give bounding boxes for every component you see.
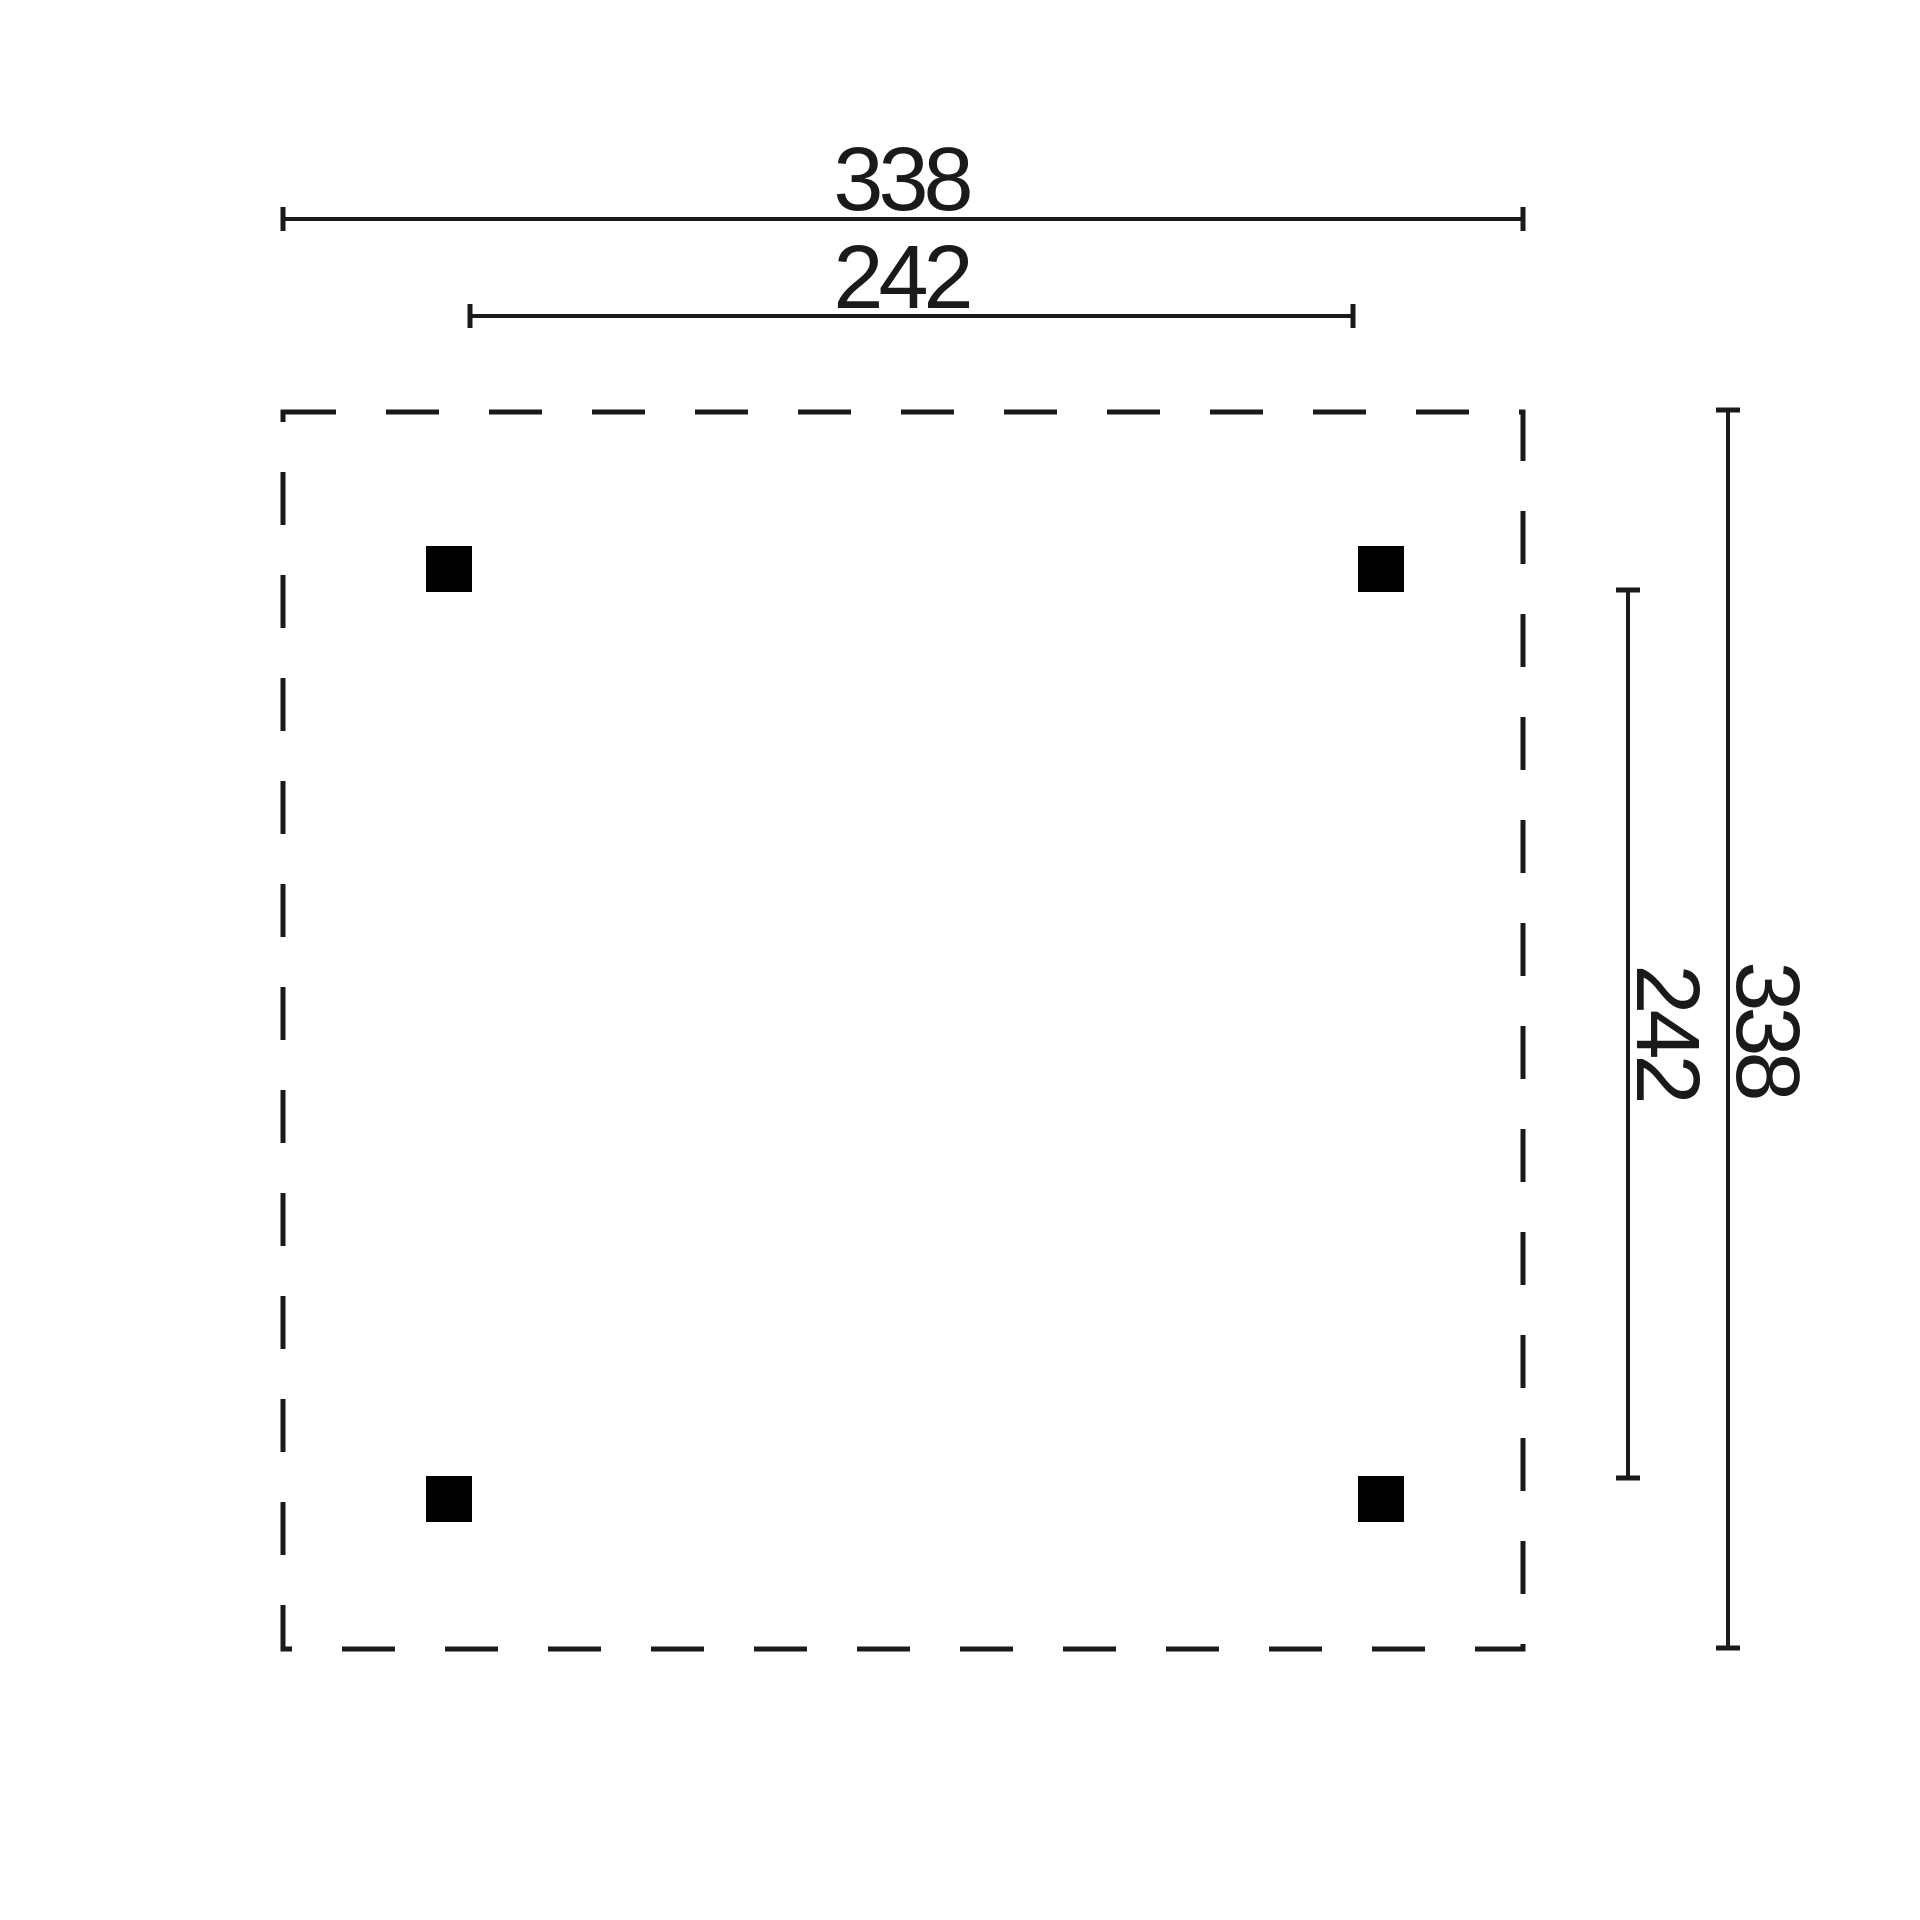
dimension-depth-inner: 242 — [1616, 590, 1717, 1478]
dimension-depth-overall: 338 — [1716, 410, 1817, 1648]
post-top-right — [1358, 546, 1404, 592]
dimension-label-width-inner: 242 — [833, 228, 969, 328]
dimension-width-inner: 242 — [470, 228, 1353, 328]
post-bottom-right — [1358, 1476, 1404, 1522]
dimension-label-width-overall: 338 — [833, 130, 970, 230]
dimension-label-depth-overall: 338 — [1717, 961, 1817, 1098]
drawing-canvas: 338 242 242 338 — [0, 0, 1920, 1920]
structure-outline-dashed — [283, 412, 1523, 1649]
floor-plan-drawing: 338 242 242 338 — [0, 0, 1920, 1920]
dimension-width-overall: 338 — [283, 130, 1523, 231]
post-bottom-left — [426, 1476, 472, 1522]
post-top-left — [426, 546, 472, 592]
dimension-label-depth-inner: 242 — [1617, 964, 1717, 1100]
posts — [426, 546, 1404, 1522]
